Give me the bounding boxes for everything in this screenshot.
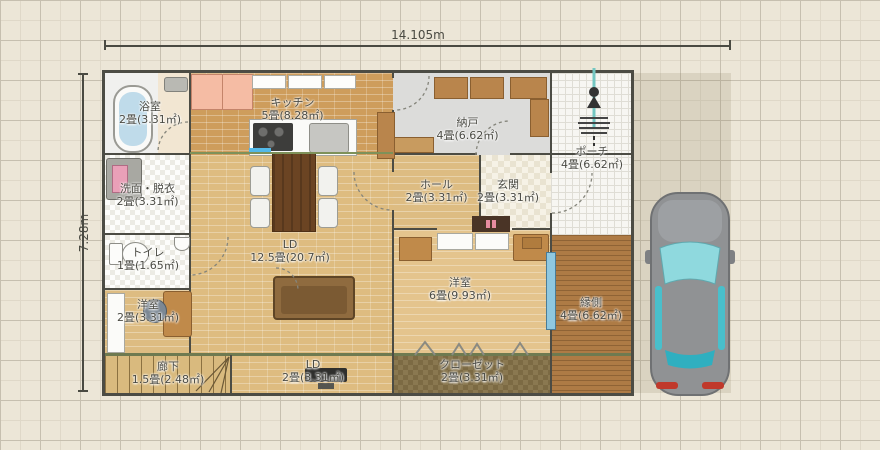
- storage-shelf-1[interactable]: [434, 77, 468, 99]
- label-living: LD12.5畳(20.7㎡): [240, 238, 340, 264]
- western-step-2: [475, 233, 509, 250]
- dining-chair-2[interactable]: [250, 198, 270, 228]
- dining-chair-3[interactable]: [318, 166, 338, 196]
- label-living2: LD2畳(3.31㎡): [258, 358, 368, 384]
- dining-chair-1[interactable]: [250, 166, 270, 196]
- label-hall: ホール2畳(3.31㎡): [393, 178, 480, 204]
- entrance-mat[interactable]: [472, 216, 510, 232]
- label-study: 洋室2畳(3.31㎡): [103, 298, 193, 324]
- car[interactable]: [645, 190, 735, 400]
- plant-icon[interactable]: [568, 66, 620, 150]
- dimension-width-label: 14.105m: [105, 28, 731, 42]
- shoe-cabinet[interactable]: [513, 234, 549, 261]
- label-entrance: 玄関2畳(3.31㎡): [468, 178, 548, 204]
- label-western: 洋室6畳(9.93㎡): [410, 276, 510, 302]
- kitchen-sink[interactable]: [309, 123, 349, 153]
- sofa[interactable]: [273, 276, 355, 320]
- dining-table[interactable]: [272, 152, 316, 232]
- stove[interactable]: [253, 123, 293, 151]
- western-step-1: [437, 233, 473, 250]
- car-taillight-left: [656, 382, 678, 389]
- car-window-left: [655, 286, 662, 350]
- western-desk-left[interactable]: [399, 237, 432, 261]
- label-bathroom: 浴室2畳(3.31㎡): [105, 100, 195, 126]
- label-storage: 納戸4畳(6.62㎡): [415, 116, 520, 142]
- storage-shelf-3[interactable]: [510, 77, 547, 99]
- dining-chair-4[interactable]: [318, 198, 338, 228]
- car-windshield: [660, 242, 720, 284]
- label-closet: クローゼット2畳(3.31㎡): [398, 358, 546, 384]
- kitchen-wall-cabinet-1: [252, 75, 286, 89]
- kitchen-wall-cabinet-3: [324, 75, 356, 89]
- kitchen-wall-cabinet-2: [288, 75, 322, 89]
- floor-plan-canvas: 浴室2畳(3.31㎡) 洗面・脱衣2畳(3.31㎡) トイレ1畳(1.65㎡) …: [0, 0, 880, 450]
- label-porch: ポーチ4畳(6.62㎡): [548, 145, 636, 171]
- label-kitchen: キッチン5畳(8.28㎡): [240, 96, 345, 122]
- car-taillight-right: [702, 382, 724, 389]
- kitchen-counter-edge: [190, 152, 393, 154]
- car-window-right: [718, 286, 725, 350]
- dimension-height-label: 7.28m: [77, 193, 91, 273]
- label-toilet: トイレ1畳(1.65㎡): [103, 246, 193, 272]
- label-washroom: 洗面・脱衣2畳(3.31㎡): [100, 182, 195, 208]
- shower-fixture-icon: [164, 77, 188, 92]
- storage-shelf-side[interactable]: [530, 99, 549, 137]
- dimension-line-width: [105, 45, 731, 47]
- storage-shelf-2[interactable]: [470, 77, 504, 99]
- label-corridor: 廊下1.5畳(2.48㎡): [105, 360, 231, 386]
- wall-bottom-strip: [105, 353, 631, 356]
- label-veranda: 縁側4畳(6.62㎡): [555, 296, 627, 322]
